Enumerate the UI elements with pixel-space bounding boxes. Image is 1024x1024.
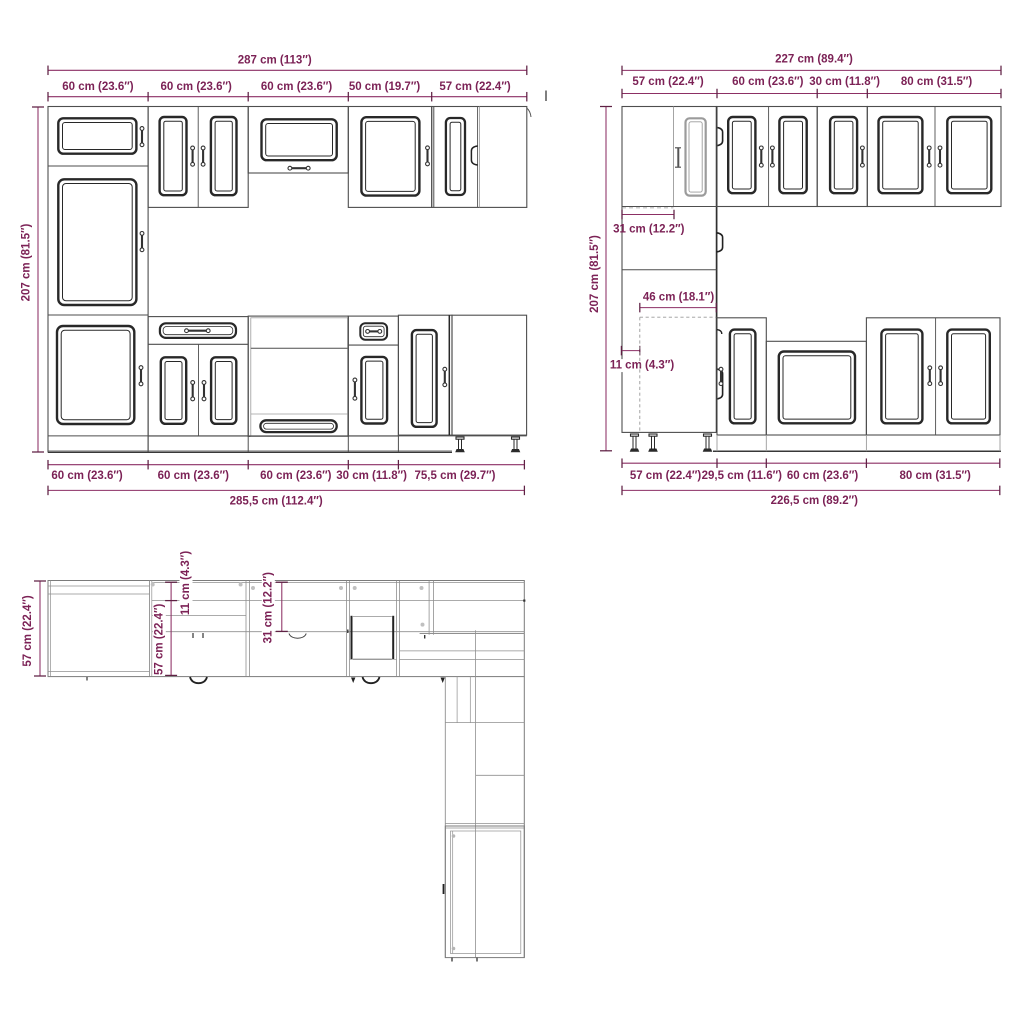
- svg-text:30 cm (11.8″): 30 cm (11.8″): [336, 470, 407, 482]
- svg-text:30 cm (11.8″): 30 cm (11.8″): [809, 76, 880, 88]
- svg-text:60 cm (23.6″): 60 cm (23.6″): [62, 81, 134, 93]
- svg-text:57 cm (22.4″): 57 cm (22.4″): [22, 595, 34, 667]
- svg-text:50 cm (19.7″): 50 cm (19.7″): [349, 81, 421, 93]
- svg-text:11 cm (4.3″): 11 cm (4.3″): [180, 551, 192, 615]
- svg-text:285,5 cm (112.4″): 285,5 cm (112.4″): [230, 496, 323, 508]
- svg-text:80 cm (31.5″): 80 cm (31.5″): [901, 76, 973, 88]
- svg-text:57 cm (22.4″): 57 cm (22.4″): [153, 603, 165, 675]
- svg-text:29,5 cm (11.6″): 29,5 cm (11.6″): [702, 470, 782, 482]
- svg-text:11 cm (4.3″): 11 cm (4.3″): [610, 360, 674, 372]
- svg-text:31 cm (12.2″): 31 cm (12.2″): [613, 224, 685, 236]
- svg-text:60 cm (23.6″): 60 cm (23.6″): [51, 470, 123, 482]
- svg-text:60 cm (23.6″): 60 cm (23.6″): [260, 470, 332, 482]
- svg-text:226,5 cm (89.2″): 226,5 cm (89.2″): [771, 495, 859, 507]
- svg-text:60 cm (23.6″): 60 cm (23.6″): [158, 470, 230, 482]
- svg-text:31 cm (12.2″): 31 cm (12.2″): [262, 572, 274, 644]
- svg-text:57 cm (22.4″): 57 cm (22.4″): [630, 470, 702, 482]
- svg-text:57 cm (22.4″): 57 cm (22.4″): [439, 81, 511, 93]
- svg-text:60 cm (23.6″): 60 cm (23.6″): [161, 81, 233, 93]
- svg-text:207 cm (81.5″): 207 cm (81.5″): [589, 235, 601, 313]
- svg-text:57 cm (22.4″): 57 cm (22.4″): [632, 76, 704, 88]
- svg-text:80 cm (31.5″): 80 cm (31.5″): [900, 470, 972, 482]
- svg-text:60 cm (23.6″): 60 cm (23.6″): [261, 81, 333, 93]
- svg-text:60 cm (23.6″): 60 cm (23.6″): [787, 470, 859, 482]
- svg-text:227 cm (89.4″): 227 cm (89.4″): [775, 53, 853, 65]
- svg-text:75,5 cm (29.7″): 75,5 cm (29.7″): [415, 470, 496, 482]
- svg-text:207 cm (81.5″): 207 cm (81.5″): [21, 223, 33, 301]
- svg-text:46 cm (18.1″): 46 cm (18.1″): [643, 292, 715, 304]
- svg-text:60 cm (23.6″): 60 cm (23.6″): [732, 76, 804, 88]
- svg-text:287 cm (113″): 287 cm (113″): [238, 54, 312, 66]
